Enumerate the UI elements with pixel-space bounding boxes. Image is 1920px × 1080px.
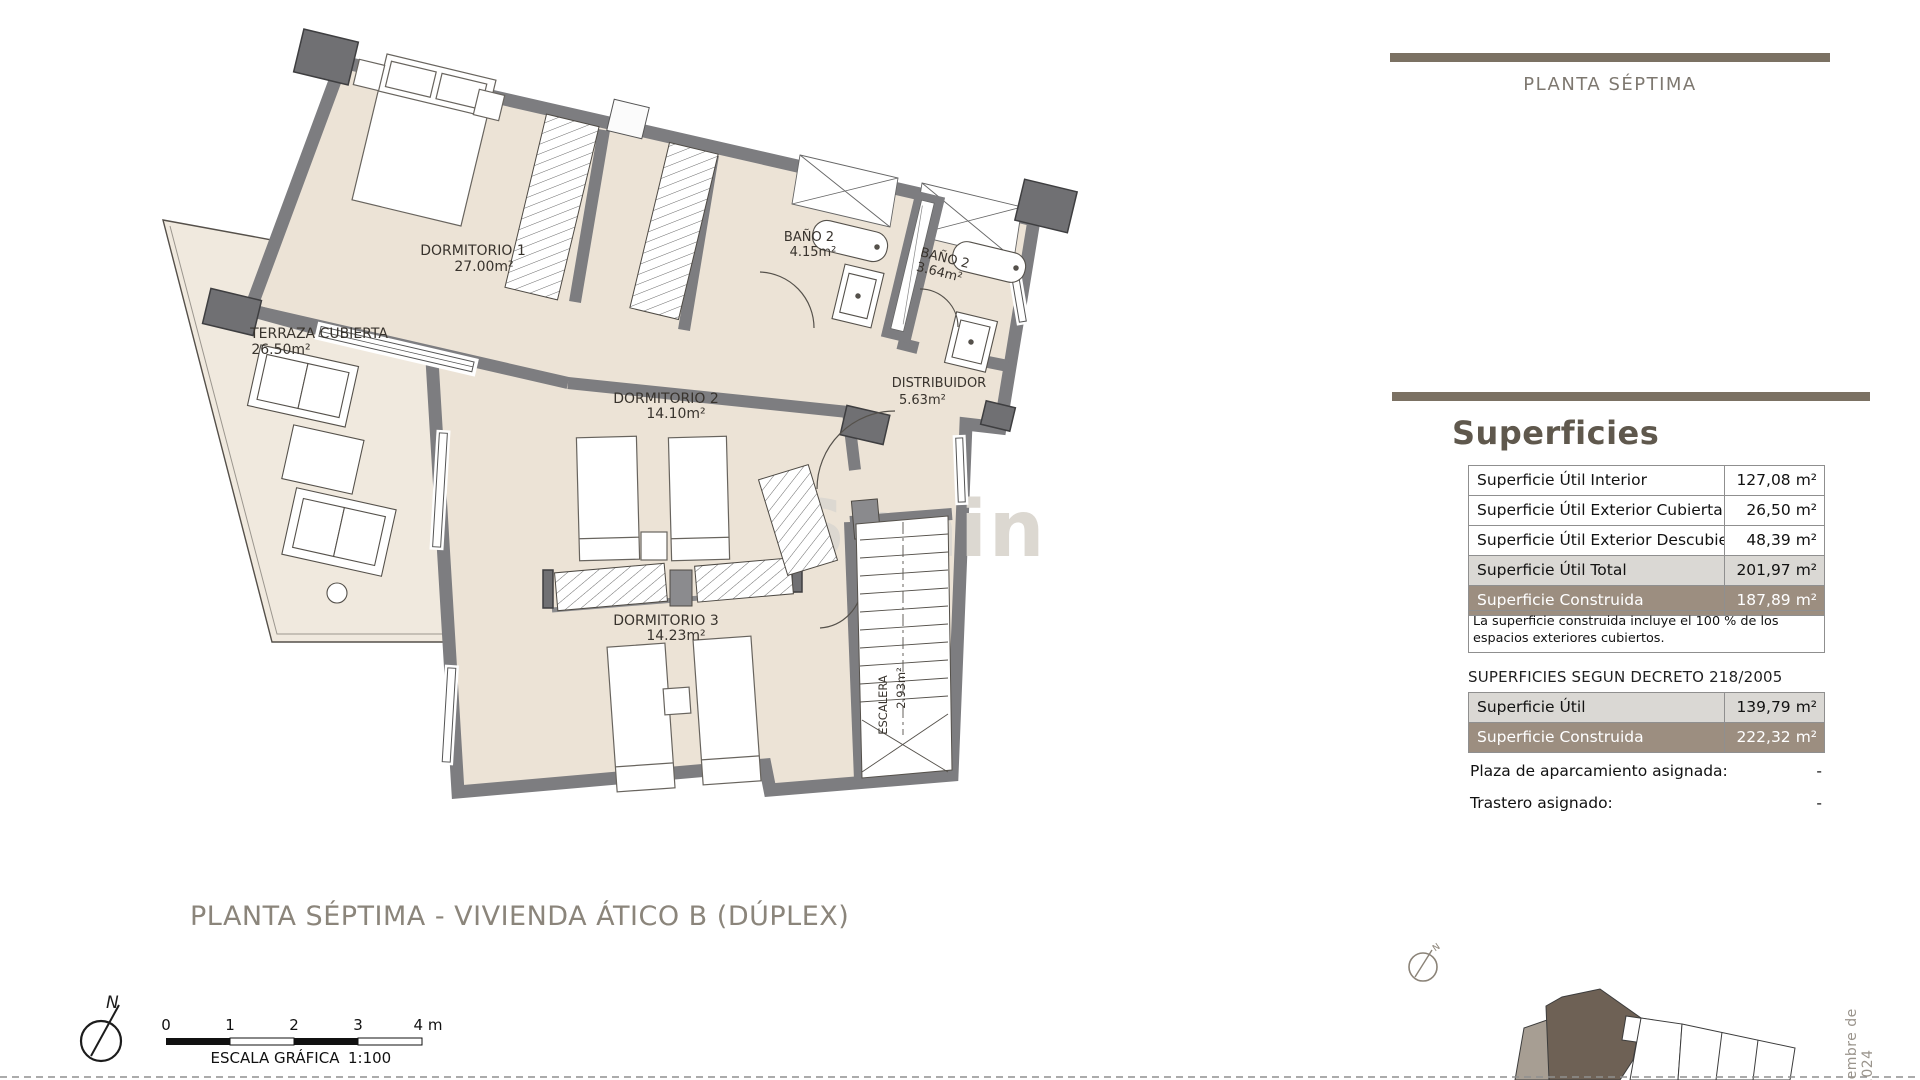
scale-bar: 0 1 2 3 4 m ESCALA GRÁFICA 1:100: [161, 1016, 442, 1067]
room-area-distribuidor: 5.63m²: [899, 393, 946, 408]
site-plan-minimap: [1515, 989, 1795, 1080]
room-area-dormitorio2: 14.10m²: [646, 406, 705, 422]
table-row-label: Superficie Útil Exterior Descubierta: [1469, 526, 1724, 555]
top-accent-bar: [1390, 53, 1830, 62]
room-label-escalera: ESCALERA: [876, 675, 890, 735]
extra-row: Trastero asignado: -: [1470, 794, 1822, 812]
compass-small-north-label: N: [1431, 942, 1442, 954]
scale-caption: ESCALA GRÁFICA: [211, 1048, 341, 1067]
surfaces-note: La superficie construida incluye el 100 …: [1468, 610, 1825, 653]
table-row: Superficie Útil 139,79m²: [1468, 692, 1825, 723]
surfaces-table: Superficie Útil Interior 127,08m² Superf…: [1468, 466, 1825, 616]
round-table: [327, 583, 347, 603]
bed-dorm2-a: [576, 436, 639, 561]
table-row-value: 127,08m²: [1724, 466, 1824, 495]
extra-label: Plaza de aparcamiento asignada:: [1470, 762, 1728, 780]
table-row-label: Superficie Útil Exterior Cubierta: [1469, 496, 1724, 525]
scale-tick-3: 3: [353, 1016, 363, 1034]
table-row-label: Superficie Útil Interior: [1469, 466, 1724, 495]
page: Spain: [0, 0, 1920, 1080]
table-row-label: Superficie Construida: [1469, 723, 1724, 752]
date-vertical-text: ciembre de 2.024: [1844, 962, 1876, 1080]
extras-list: Plaza de aparcamiento asignada: - Traste…: [1470, 762, 1822, 826]
room-area-baño2a: 4.15m²: [790, 245, 837, 260]
nightstand: [353, 59, 384, 90]
table-row-value: 201,97m²: [1724, 556, 1824, 585]
table-row-value: 222,32m²: [1724, 723, 1824, 752]
bed-dorm2-b: [668, 436, 729, 560]
room-area-dormitorio1: 27.00m²: [454, 259, 513, 275]
room-label-baño2a: BAÑO 2: [784, 229, 834, 245]
room-area-terraza: 26.50m²: [251, 342, 310, 358]
extra-value: -: [1816, 762, 1822, 780]
nightstand: [663, 687, 691, 715]
plan-title: PLANTA SÉPTIMA - VIVIENDA ÁTICO B (DÚPLE…: [190, 901, 849, 932]
extra-label: Trastero asignado:: [1470, 794, 1613, 812]
compass-small: [1409, 950, 1437, 981]
table-row: Superficie Útil Exterior Cubierta 26,50m…: [1468, 495, 1825, 526]
extra-value: -: [1816, 794, 1822, 812]
nightstand: [473, 89, 504, 120]
room-label-terraza: TERRAZA CUBIERTA: [249, 326, 388, 342]
nightstand: [641, 532, 667, 560]
surfaces-heading: Superficies: [1452, 414, 1659, 452]
scale-tick-4: 4 m: [414, 1016, 443, 1034]
room-label-dormitorio1: DORMITORIO 1: [420, 243, 526, 259]
closet-center-block: [670, 570, 692, 606]
floor-label: PLANTA SÉPTIMA: [1390, 74, 1830, 95]
table-row-label: Superficie Útil: [1469, 693, 1724, 722]
stairs: [856, 516, 952, 778]
room-label-distribuidor: DISTRIBUIDOR: [892, 376, 986, 391]
table-row-label: Superficie Útil Total: [1469, 556, 1724, 585]
table-row: Superficie Útil Interior 127,08m²: [1468, 465, 1825, 496]
scale-tick-2: 2: [289, 1016, 299, 1034]
table-row-value: 48,39m²: [1724, 526, 1824, 555]
bed-dorm3-a: [607, 643, 675, 792]
compass-north-label: N: [106, 993, 119, 1013]
scale-ratio: 1:100: [348, 1049, 391, 1067]
room-label-dormitorio3: DORMITORIO 3: [613, 613, 719, 629]
scale-tick-1: 1: [225, 1016, 235, 1034]
room-area-escalera: 2.93m²: [894, 667, 908, 708]
table-row-value: 139,79m²: [1724, 693, 1824, 722]
bed-dorm3-b: [693, 636, 761, 785]
room-label-dormitorio2: DORMITORIO 2: [613, 391, 719, 407]
scale-tick-0: 0: [161, 1016, 171, 1034]
room-area-dormitorio3: 14.23m²: [646, 628, 705, 644]
compass-main: [81, 1005, 121, 1061]
table-row: Superficie Útil Exterior Descubierta 48,…: [1468, 525, 1825, 556]
decreto-table: Superficie Útil 139,79m² Superficie Cons…: [1468, 693, 1825, 753]
surfaces-accent-bar: [1392, 392, 1870, 401]
table-row: Superficie Construida 222,32m²: [1468, 722, 1825, 753]
extra-row: Plaza de aparcamiento asignada: -: [1470, 762, 1822, 780]
table-row: Superficie Útil Total 201,97m²: [1468, 555, 1825, 586]
table-row-value: 26,50m²: [1724, 496, 1824, 525]
decreto-heading: SUPERFICIES SEGUN DECRETO 218/2005: [1468, 668, 1783, 686]
